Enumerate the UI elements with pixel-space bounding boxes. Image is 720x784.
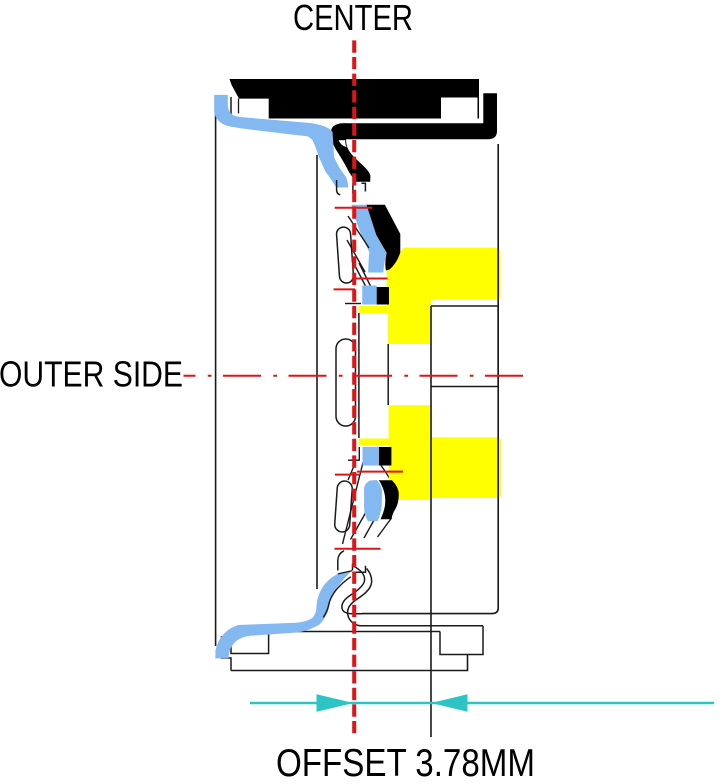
svg-text:CENTER: CENTER bbox=[293, 0, 413, 38]
svg-text:OUTER SIDE: OUTER SIDE bbox=[0, 354, 183, 395]
svg-text:OFFSET 3.78MM: OFFSET 3.78MM bbox=[276, 742, 535, 784]
